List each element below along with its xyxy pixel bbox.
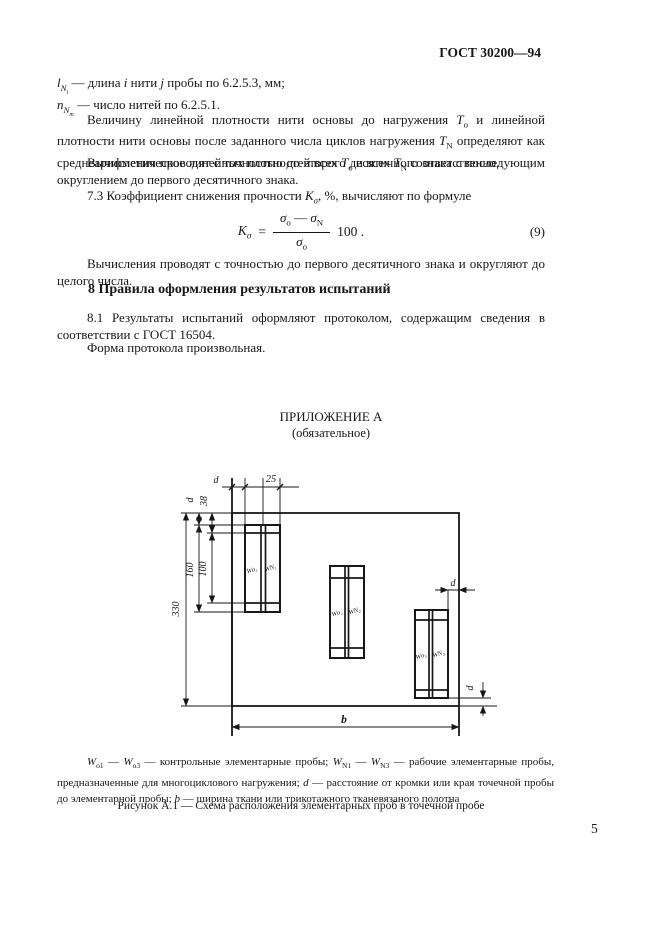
minus-sign: — <box>294 210 307 225</box>
formula-number: (9) <box>57 224 545 240</box>
clause-7-3: 7.3 Коэффициент снижения прочности Kσ, %… <box>57 188 545 209</box>
dim-label-left-d: d <box>185 497 196 503</box>
sample-label-n2: WN₂ <box>348 606 362 616</box>
sample-label-o3: Wо₃ <box>415 652 427 662</box>
dim-label-330: 330 <box>171 602 182 618</box>
dim-label-b: b <box>341 714 347 726</box>
doc-code: ГОСТ 30200—94 <box>57 45 541 61</box>
dim-label-bottom-d: d <box>465 685 476 691</box>
sample-unit-1: Wо₁ WN₁ <box>245 525 280 612</box>
dim-label-right-d: d <box>451 578 457 589</box>
definition-text: — длина <box>68 75 124 90</box>
definitions-block: lNi — длина i нити j пробы по 6.2.5.3, м… <box>57 72 545 116</box>
dim-label-38: 38 <box>199 496 210 507</box>
dim-label-100: 100 <box>198 562 209 577</box>
paragraph-rounding-2: Вычисления проводят с точностью до второ… <box>57 155 545 189</box>
caption-text: — <box>351 756 371 768</box>
clause-8-1: 8.1 Результаты испытаний оформляют прото… <box>57 310 545 344</box>
page-number: 5 <box>591 821 598 837</box>
caption-symbol-sub: N3 <box>380 761 389 770</box>
caption-text: — <box>104 756 124 768</box>
definition-text: нити <box>127 75 160 90</box>
sample-label-n3: WN₃ <box>432 649 445 659</box>
paragraph-text: Величину линейной плотности нити основы … <box>87 112 456 127</box>
var-T: T <box>456 112 463 127</box>
var-K: K <box>305 188 314 203</box>
dim-label-25: 25 <box>266 474 277 485</box>
dim-label-top-d: d <box>214 475 220 486</box>
caption-symbol-sub: о1 <box>96 761 103 770</box>
caption-symbol: W <box>123 756 132 768</box>
section-8-heading: 8 Правила оформления результатов испытан… <box>88 282 391 298</box>
appendix-subtitle: (обязательное) <box>57 425 605 441</box>
caption-symbol-sub: N1 <box>342 761 351 770</box>
sample-label-o1: Wо₁ <box>246 566 258 576</box>
appendix-block: ПРИЛОЖЕНИЕ А (обязательное) <box>57 409 605 441</box>
sample-unit-3: Wо₃ WN₃ <box>415 610 448 698</box>
caption-text: — контрольные элементарные пробы; <box>140 756 333 768</box>
caption-symbol: W <box>333 756 342 768</box>
sample-unit-2: Wо₂ WN₂ <box>330 566 364 658</box>
clause-text: , %, вычисляют по формуле <box>318 188 471 203</box>
var-sigma-sub: о <box>303 241 307 251</box>
appendix-title: ПРИЛОЖЕНИЕ А <box>57 409 605 425</box>
caption-symbol: W <box>371 756 380 768</box>
dim-label-160: 160 <box>185 563 196 578</box>
definition-text: — число нитей по 6.2.5.1. <box>74 97 220 112</box>
caption-symbol: W <box>87 756 96 768</box>
clause-text: 7.3 Коэффициент снижения прочности <box>87 188 305 203</box>
figure-label: Рисунок А.1 — Схема расположения элемент… <box>57 800 545 812</box>
caption-symbol-sub: о3 <box>133 761 140 770</box>
document-page: ГОСТ 30200—94 lNi — длина i нити j пробы… <box>0 0 661 936</box>
figure-a1-diagram: Wо₁ WN₁ Wо₂ WN₂ Wо₃ WN₃ <box>0 460 661 750</box>
clause-8-1-note: Форма протокола произвольная. <box>57 340 545 357</box>
definition-text: пробы по 6.2.5.3, мм; <box>164 75 285 90</box>
definition-line-1: lNi — длина i нити j пробы по 6.2.5.3, м… <box>57 72 545 94</box>
sample-label-o2: Wо₂ <box>331 608 344 618</box>
